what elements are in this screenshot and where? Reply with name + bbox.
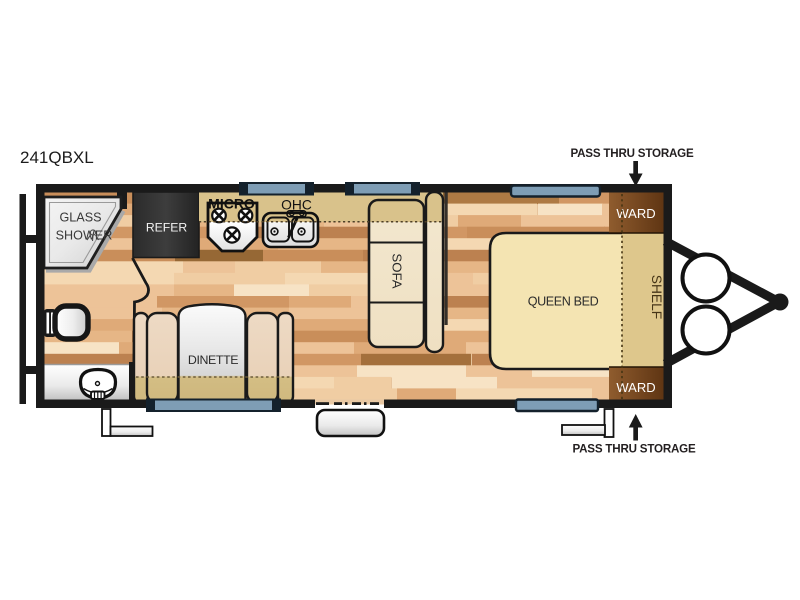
- svg-text:PASS THRU STORAGE: PASS THRU STORAGE: [570, 147, 694, 160]
- svg-text:MICRO: MICRO: [208, 196, 255, 212]
- svg-text:WARD: WARD: [616, 206, 655, 221]
- svg-text:GLASS: GLASS: [60, 211, 102, 225]
- svg-text:SOFA: SOFA: [390, 253, 405, 288]
- svg-text:DINETTE: DINETTE: [188, 353, 238, 367]
- svg-text:241QBXL: 241QBXL: [20, 148, 94, 167]
- svg-text:PASS THRU STORAGE: PASS THRU STORAGE: [572, 443, 696, 456]
- svg-text:OHC: OHC: [281, 198, 312, 213]
- svg-text:QUEEN BED: QUEEN BED: [528, 295, 599, 309]
- svg-text:REFER: REFER: [146, 221, 188, 235]
- svg-text:SHOWER: SHOWER: [56, 229, 113, 243]
- svg-text:SHELF: SHELF: [649, 275, 664, 319]
